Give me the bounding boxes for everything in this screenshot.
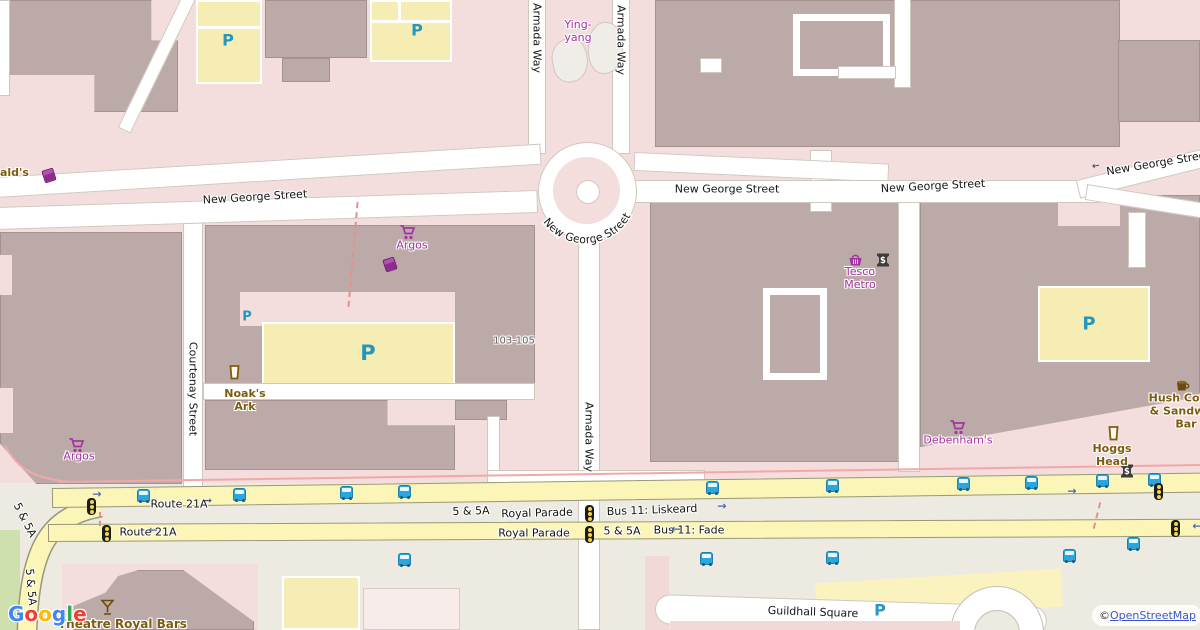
- poi-label-line: Metro: [844, 278, 876, 291]
- argos-parking-building: [262, 322, 455, 385]
- route-label-5-5a: 5 & 5A: [603, 525, 640, 538]
- bus-stop-icon: [826, 479, 839, 492]
- route-label-5-5a: 5 & 5A: [452, 504, 489, 518]
- courtyard: [763, 288, 827, 380]
- route-label-bus11-fade: Bus 11: Fade: [654, 524, 725, 537]
- parking-marker: P: [360, 341, 375, 365]
- attribution-copyright: ©: [1099, 609, 1110, 622]
- poi-label-line: Ying-: [564, 18, 591, 31]
- map-viewport[interactable]: $ $ New George Street: [0, 0, 1200, 630]
- path: [838, 66, 896, 79]
- poi-label-mcdonalds: McDonald's: [0, 166, 29, 179]
- traffic-light-icon: [585, 505, 594, 522]
- path: [700, 58, 722, 73]
- route-label-21a: Route 21A: [151, 498, 208, 511]
- poi-label-line: Hoggs: [1092, 442, 1131, 455]
- poi-label-argos: Argos: [396, 239, 427, 252]
- bus-stop-icon: [137, 489, 150, 502]
- parking-marker: P: [411, 21, 423, 40]
- bus-stop-icon: [1025, 476, 1038, 489]
- building: [363, 588, 460, 630]
- street-label-armada-way: Armada Way: [615, 5, 628, 75]
- crossing-dashed: [99, 512, 101, 526]
- street-label-new-george: New George Street: [675, 183, 780, 196]
- oneway-arrow-icon: ←: [148, 525, 157, 536]
- street-label-armada-way: Armada Way: [531, 3, 544, 73]
- bus-stop-icon: [398, 553, 411, 566]
- building: [1118, 40, 1200, 122]
- traffic-light-icon: [87, 498, 96, 515]
- building: [282, 576, 360, 630]
- poi-label-debenhams: Debenham's: [923, 434, 992, 447]
- building: [265, 0, 367, 58]
- bus-stop-icon: [1096, 474, 1109, 487]
- oneway-arrow-icon: ←: [1192, 521, 1200, 532]
- traffic-light-icon: [1154, 483, 1163, 500]
- parking-marker: P: [222, 31, 234, 50]
- poi-label-line: & Sandwich: [1149, 405, 1200, 418]
- google-logo[interactable]: Google: [8, 602, 87, 626]
- coffee-cup-icon: [1175, 379, 1190, 392]
- oneway-arrow-icon: →: [1067, 486, 1076, 497]
- parking-marker: P: [874, 601, 886, 620]
- bus-stop-icon: [340, 486, 353, 499]
- svg-text:New George Street: New George Street: [541, 210, 634, 246]
- atm-icon: $: [875, 252, 891, 268]
- land-notch: [0, 255, 12, 295]
- bus-stop-icon: [706, 481, 719, 494]
- street-label-armada-way: Armada Way: [583, 402, 596, 472]
- street-label-new-george-curved: New George Street: [500, 130, 690, 260]
- google-logo-letter: o: [38, 602, 52, 626]
- svg-text:$: $: [1124, 467, 1130, 477]
- route-label-bus11-liskeard: Bus 11: Liskeard: [606, 502, 697, 518]
- path: [0, 0, 10, 96]
- oneway-arrow-icon: ←: [1091, 161, 1100, 173]
- oneway-arrow-icon: →: [717, 501, 726, 512]
- poi-label-line: Bar: [1149, 418, 1200, 431]
- poi-label-line: Hush Coffee: [1149, 392, 1200, 405]
- poi-label-line: yang: [564, 31, 591, 44]
- poi-label-tesco-metro: Tesco Metro: [844, 265, 876, 291]
- house-number-label: 103-105: [493, 335, 535, 348]
- poi-label-hush-coffee: Hush Coffee & Sandwich Bar: [1149, 392, 1200, 431]
- traffic-light-icon: [1171, 520, 1180, 537]
- poi-label-hoggs-head: Hoggs Head: [1092, 442, 1131, 468]
- divider: [398, 2, 401, 20]
- path: [894, 0, 911, 88]
- bus-stop-icon: [233, 488, 246, 501]
- street-label-courtenay: Courtenay Street: [187, 342, 200, 436]
- oneway-arrow-icon: →: [92, 489, 101, 500]
- poi-label-ying-yang: Ying- yang: [564, 18, 591, 44]
- street: [898, 196, 920, 472]
- oneway-arrow-icon: →: [204, 497, 212, 508]
- building-strip: [670, 621, 960, 630]
- poi-label-noaks-ark: Noak's Ark: [224, 387, 265, 413]
- cocktail-icon: [100, 598, 115, 616]
- traffic-light-icon: [585, 526, 594, 543]
- google-logo-letter: e: [73, 602, 87, 626]
- bus-stop-icon: [826, 551, 839, 564]
- land-notch: [0, 388, 13, 433]
- building: [282, 58, 330, 82]
- openstreetmap-link[interactable]: OpenStreetMap: [1110, 609, 1196, 622]
- google-logo-letter: G: [8, 602, 24, 626]
- poi-label-line: Ark: [224, 400, 265, 413]
- street-label-royal-parade: Royal Parade: [498, 527, 570, 540]
- bus-stop-icon: [957, 477, 970, 490]
- bus-stop-icon: [1127, 537, 1140, 550]
- google-logo-letter: o: [24, 602, 38, 626]
- pub-glass-icon: [228, 364, 241, 381]
- street-label-royal-parade: Royal Parade: [501, 506, 573, 521]
- bus-stop-icon: [700, 552, 713, 565]
- svg-text:$: $: [880, 256, 886, 266]
- oneway-arrow-icon: ←: [671, 524, 680, 535]
- map-attribution: © OpenStreetMap: [1092, 605, 1200, 626]
- divider: [198, 26, 260, 29]
- poi-label-line: Tesco: [844, 265, 876, 278]
- street: [1128, 212, 1146, 268]
- bus-stop-icon: [1063, 549, 1076, 562]
- parking-marker: P: [242, 310, 252, 325]
- bus-stop-icon: [398, 485, 411, 498]
- poi-label-line: Head: [1092, 455, 1131, 468]
- poi-label-argos: Argos: [63, 450, 94, 463]
- poi-label-line: Noak's: [224, 387, 265, 400]
- parking-marker: P: [1082, 314, 1095, 335]
- pub-glass-icon: [1107, 425, 1120, 442]
- traffic-light-icon: [102, 525, 111, 542]
- google-logo-letter: g: [52, 602, 66, 626]
